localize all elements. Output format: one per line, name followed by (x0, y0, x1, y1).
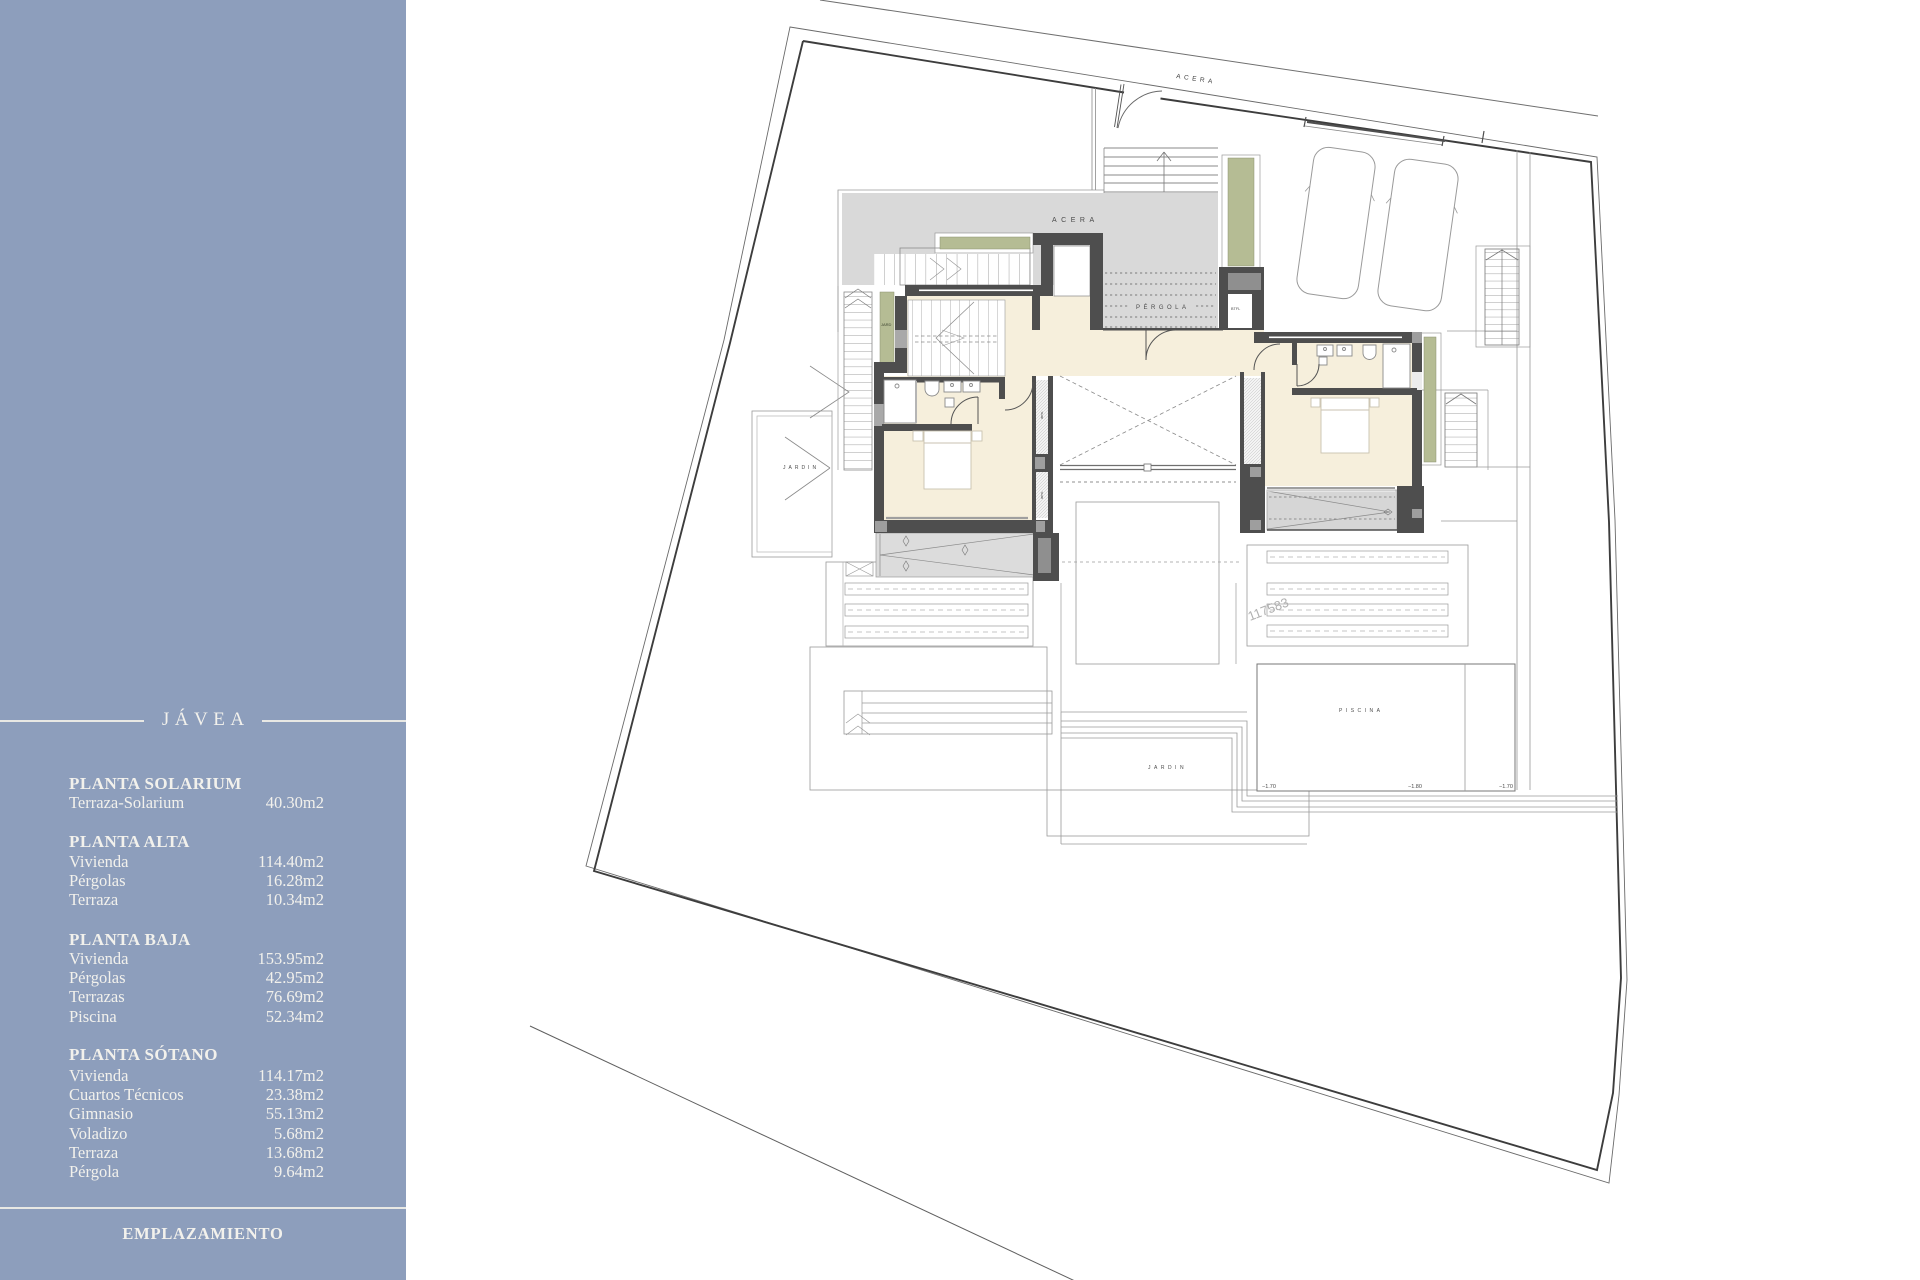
svg-text:−1.80: −1.80 (1408, 784, 1422, 790)
svg-text:ACERA: ACERA (1052, 217, 1099, 224)
svg-text:−1.70: −1.70 (1262, 784, 1276, 790)
svg-text:JARD: JARD (881, 322, 892, 327)
svg-text:BTFL: BTFL (1231, 307, 1240, 311)
svg-text:−1.70: −1.70 (1499, 784, 1513, 790)
svg-text:arm.: arm. (1039, 411, 1044, 419)
svg-text:arm.: arm. (1039, 491, 1044, 499)
svg-text:ACERA: ACERA (1176, 73, 1217, 86)
svg-text:JARDIN: JARDIN (1148, 765, 1187, 771)
svg-text:PISCINA: PISCINA (1339, 708, 1384, 714)
svg-text:PÉRGOLA: PÉRGOLA (1136, 304, 1190, 311)
svg-text:JARDIN: JARDIN (783, 465, 819, 471)
